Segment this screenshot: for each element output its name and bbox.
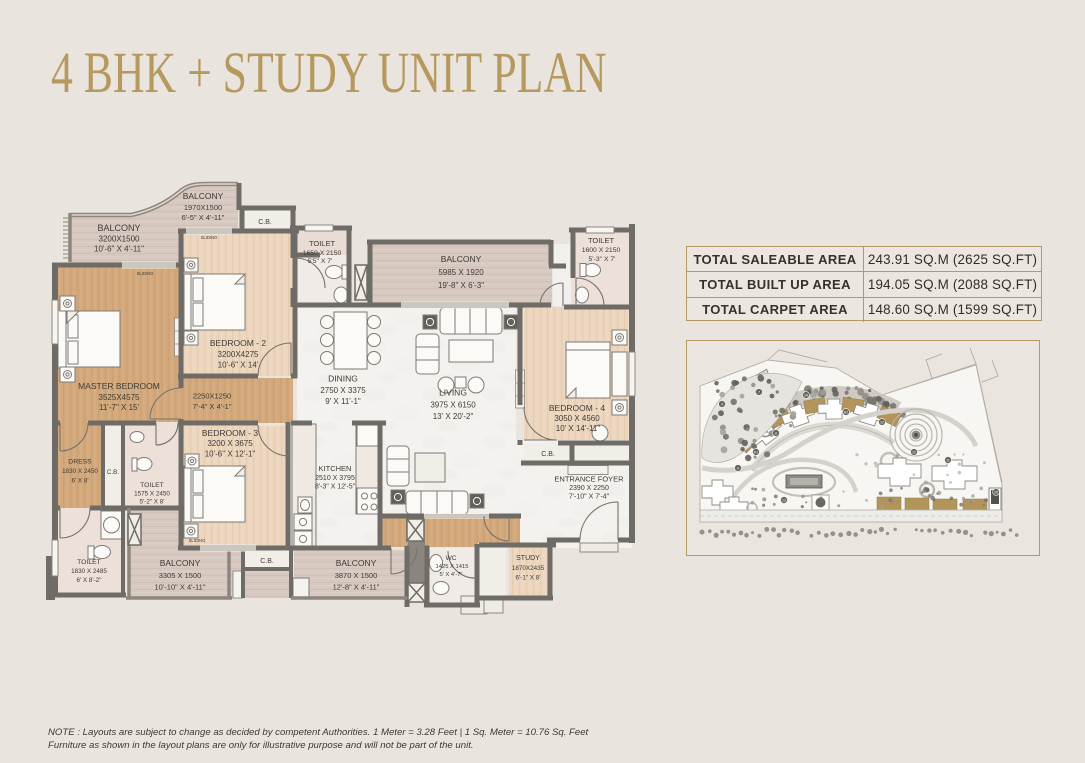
svg-text:5'-2" X 8': 5'-2" X 8'	[140, 499, 165, 506]
svg-text:5' X 4'-7": 5' X 4'-7"	[440, 572, 463, 578]
svg-text:4: 4	[721, 402, 723, 406]
svg-text:11: 11	[946, 458, 950, 462]
svg-text:12'-8" X 4'-11": 12'-8" X 4'-11"	[333, 583, 380, 592]
svg-text:BEDROOM - 4: BEDROOM - 4	[549, 403, 605, 413]
svg-text:LIVING: LIVING	[439, 388, 467, 398]
svg-text:3200X1500: 3200X1500	[99, 235, 140, 244]
svg-text:1600 X 2150: 1600 X 2150	[582, 247, 621, 254]
svg-text:5985 X 1920: 5985 X 1920	[438, 268, 484, 277]
svg-text:C.B.: C.B.	[258, 219, 272, 226]
svg-text:14: 14	[804, 393, 808, 397]
svg-text:BALCONY: BALCONY	[336, 558, 377, 568]
svg-text:10'-10" X 4'-11": 10'-10" X 4'-11"	[155, 583, 206, 592]
svg-text:6' X 8'-2": 6' X 8'-2"	[77, 577, 102, 584]
svg-text:7'-4" X 4'-1": 7'-4" X 4'-1"	[192, 402, 231, 411]
svg-text:BALCONY: BALCONY	[441, 254, 482, 264]
svg-text:13' X 20'-2": 13' X 20'-2"	[433, 412, 474, 421]
svg-text:10'-6" X 12'-1": 10'-6" X 12'-1"	[205, 450, 256, 459]
svg-text:BEDROOM - 2: BEDROOM - 2	[210, 338, 266, 348]
svg-text:10: 10	[880, 420, 884, 424]
svg-text:3200 X 3675: 3200 X 3675	[207, 439, 253, 448]
svg-text:9: 9	[737, 466, 739, 470]
svg-text:SLIDING: SLIDING	[137, 271, 154, 276]
svg-text:10' X 14'-11": 10' X 14'-11"	[556, 424, 601, 433]
svg-text:3975 X 6150: 3975 X 6150	[430, 401, 476, 410]
svg-text:11'-7" X 15': 11'-7" X 15'	[99, 403, 139, 412]
svg-text:TOILET: TOILET	[588, 236, 615, 245]
svg-text:DINING: DINING	[328, 374, 358, 384]
svg-text:1650 X 2150: 1650 X 2150	[303, 250, 342, 257]
svg-text:C.B.: C.B.	[541, 451, 555, 458]
svg-text:7: 7	[758, 390, 760, 394]
svg-text:BALCONY: BALCONY	[97, 223, 140, 233]
svg-text:8: 8	[775, 431, 777, 435]
svg-text:C.B.: C.B.	[260, 558, 274, 565]
svg-text:BALCONY: BALCONY	[183, 191, 224, 201]
svg-text:13: 13	[782, 498, 786, 502]
svg-text:10'-6" X 4'-11": 10'-6" X 4'-11"	[94, 245, 144, 254]
svg-text:SLIDING: SLIDING	[201, 235, 218, 240]
svg-text:WC: WC	[446, 555, 457, 562]
svg-text:3525X4575: 3525X4575	[99, 393, 140, 402]
svg-text:6'-1" X 8': 6'-1" X 8'	[516, 575, 541, 582]
svg-text:2510 X 3795: 2510 X 3795	[315, 475, 355, 482]
svg-text:1575 X 2450: 1575 X 2450	[134, 491, 170, 498]
svg-text:19'-8" X 6'-3": 19'-8" X 6'-3"	[438, 281, 484, 290]
svg-text:8'-3" X 12'-5": 8'-3" X 12'-5"	[315, 484, 356, 491]
svg-text:15: 15	[994, 490, 998, 494]
svg-text:BALCONY: BALCONY	[160, 558, 201, 568]
svg-text:9' X 11'-1": 9' X 11'-1"	[325, 397, 361, 406]
svg-text:KITCHEN: KITCHEN	[319, 464, 352, 473]
svg-text:3200X4275: 3200X4275	[218, 350, 259, 359]
svg-text:C.B.: C.B.	[107, 469, 119, 476]
svg-text:BEDROOM - 3: BEDROOM - 3	[202, 428, 258, 438]
svg-text:2390 X 2250: 2390 X 2250	[569, 485, 609, 492]
svg-text:1870X2435: 1870X2435	[512, 565, 545, 572]
svg-text:A1: A1	[754, 450, 758, 454]
svg-text:3305 X 1500: 3305 X 1500	[159, 571, 202, 580]
svg-text:DRESS: DRESS	[68, 459, 92, 466]
svg-text:TOILET: TOILET	[140, 482, 164, 489]
svg-text:TOILET: TOILET	[77, 559, 101, 566]
svg-text:SLIDING: SLIDING	[189, 538, 206, 543]
svg-text:7'-10" X 7'-4": 7'-10" X 7'-4"	[569, 494, 610, 501]
svg-text:2750 X 3375: 2750 X 3375	[320, 386, 366, 395]
svg-text:3050 X 4560: 3050 X 4560	[554, 414, 600, 423]
svg-text:TOILET: TOILET	[309, 239, 336, 248]
svg-text:5'-3" X 7': 5'-3" X 7'	[589, 256, 616, 263]
svg-text:A2: A2	[844, 410, 848, 414]
svg-text:MASTER BEDROOM: MASTER BEDROOM	[78, 381, 160, 391]
svg-text:6' X 8': 6' X 8'	[71, 478, 88, 485]
svg-text:1970X1500: 1970X1500	[184, 203, 222, 212]
svg-text:12: 12	[912, 450, 916, 454]
svg-text:1830 X 2485: 1830 X 2485	[71, 568, 107, 575]
svg-text:6'-5" X 4'-11": 6'-5" X 4'-11"	[182, 213, 225, 222]
svg-text:5'5" X 7': 5'5" X 7'	[308, 258, 333, 265]
svg-text:10'-6" X 14': 10'-6" X 14'	[218, 361, 259, 370]
svg-text:1425 X 1415: 1425 X 1415	[436, 564, 469, 570]
svg-text:STUDY: STUDY	[516, 555, 540, 562]
svg-text:ENTRANCE FOYER: ENTRANCE FOYER	[554, 475, 624, 484]
svg-text:1830 X 2450: 1830 X 2450	[62, 468, 98, 475]
svg-text:3870 X 1500: 3870 X 1500	[335, 571, 378, 580]
svg-text:2250X1250: 2250X1250	[193, 392, 231, 401]
